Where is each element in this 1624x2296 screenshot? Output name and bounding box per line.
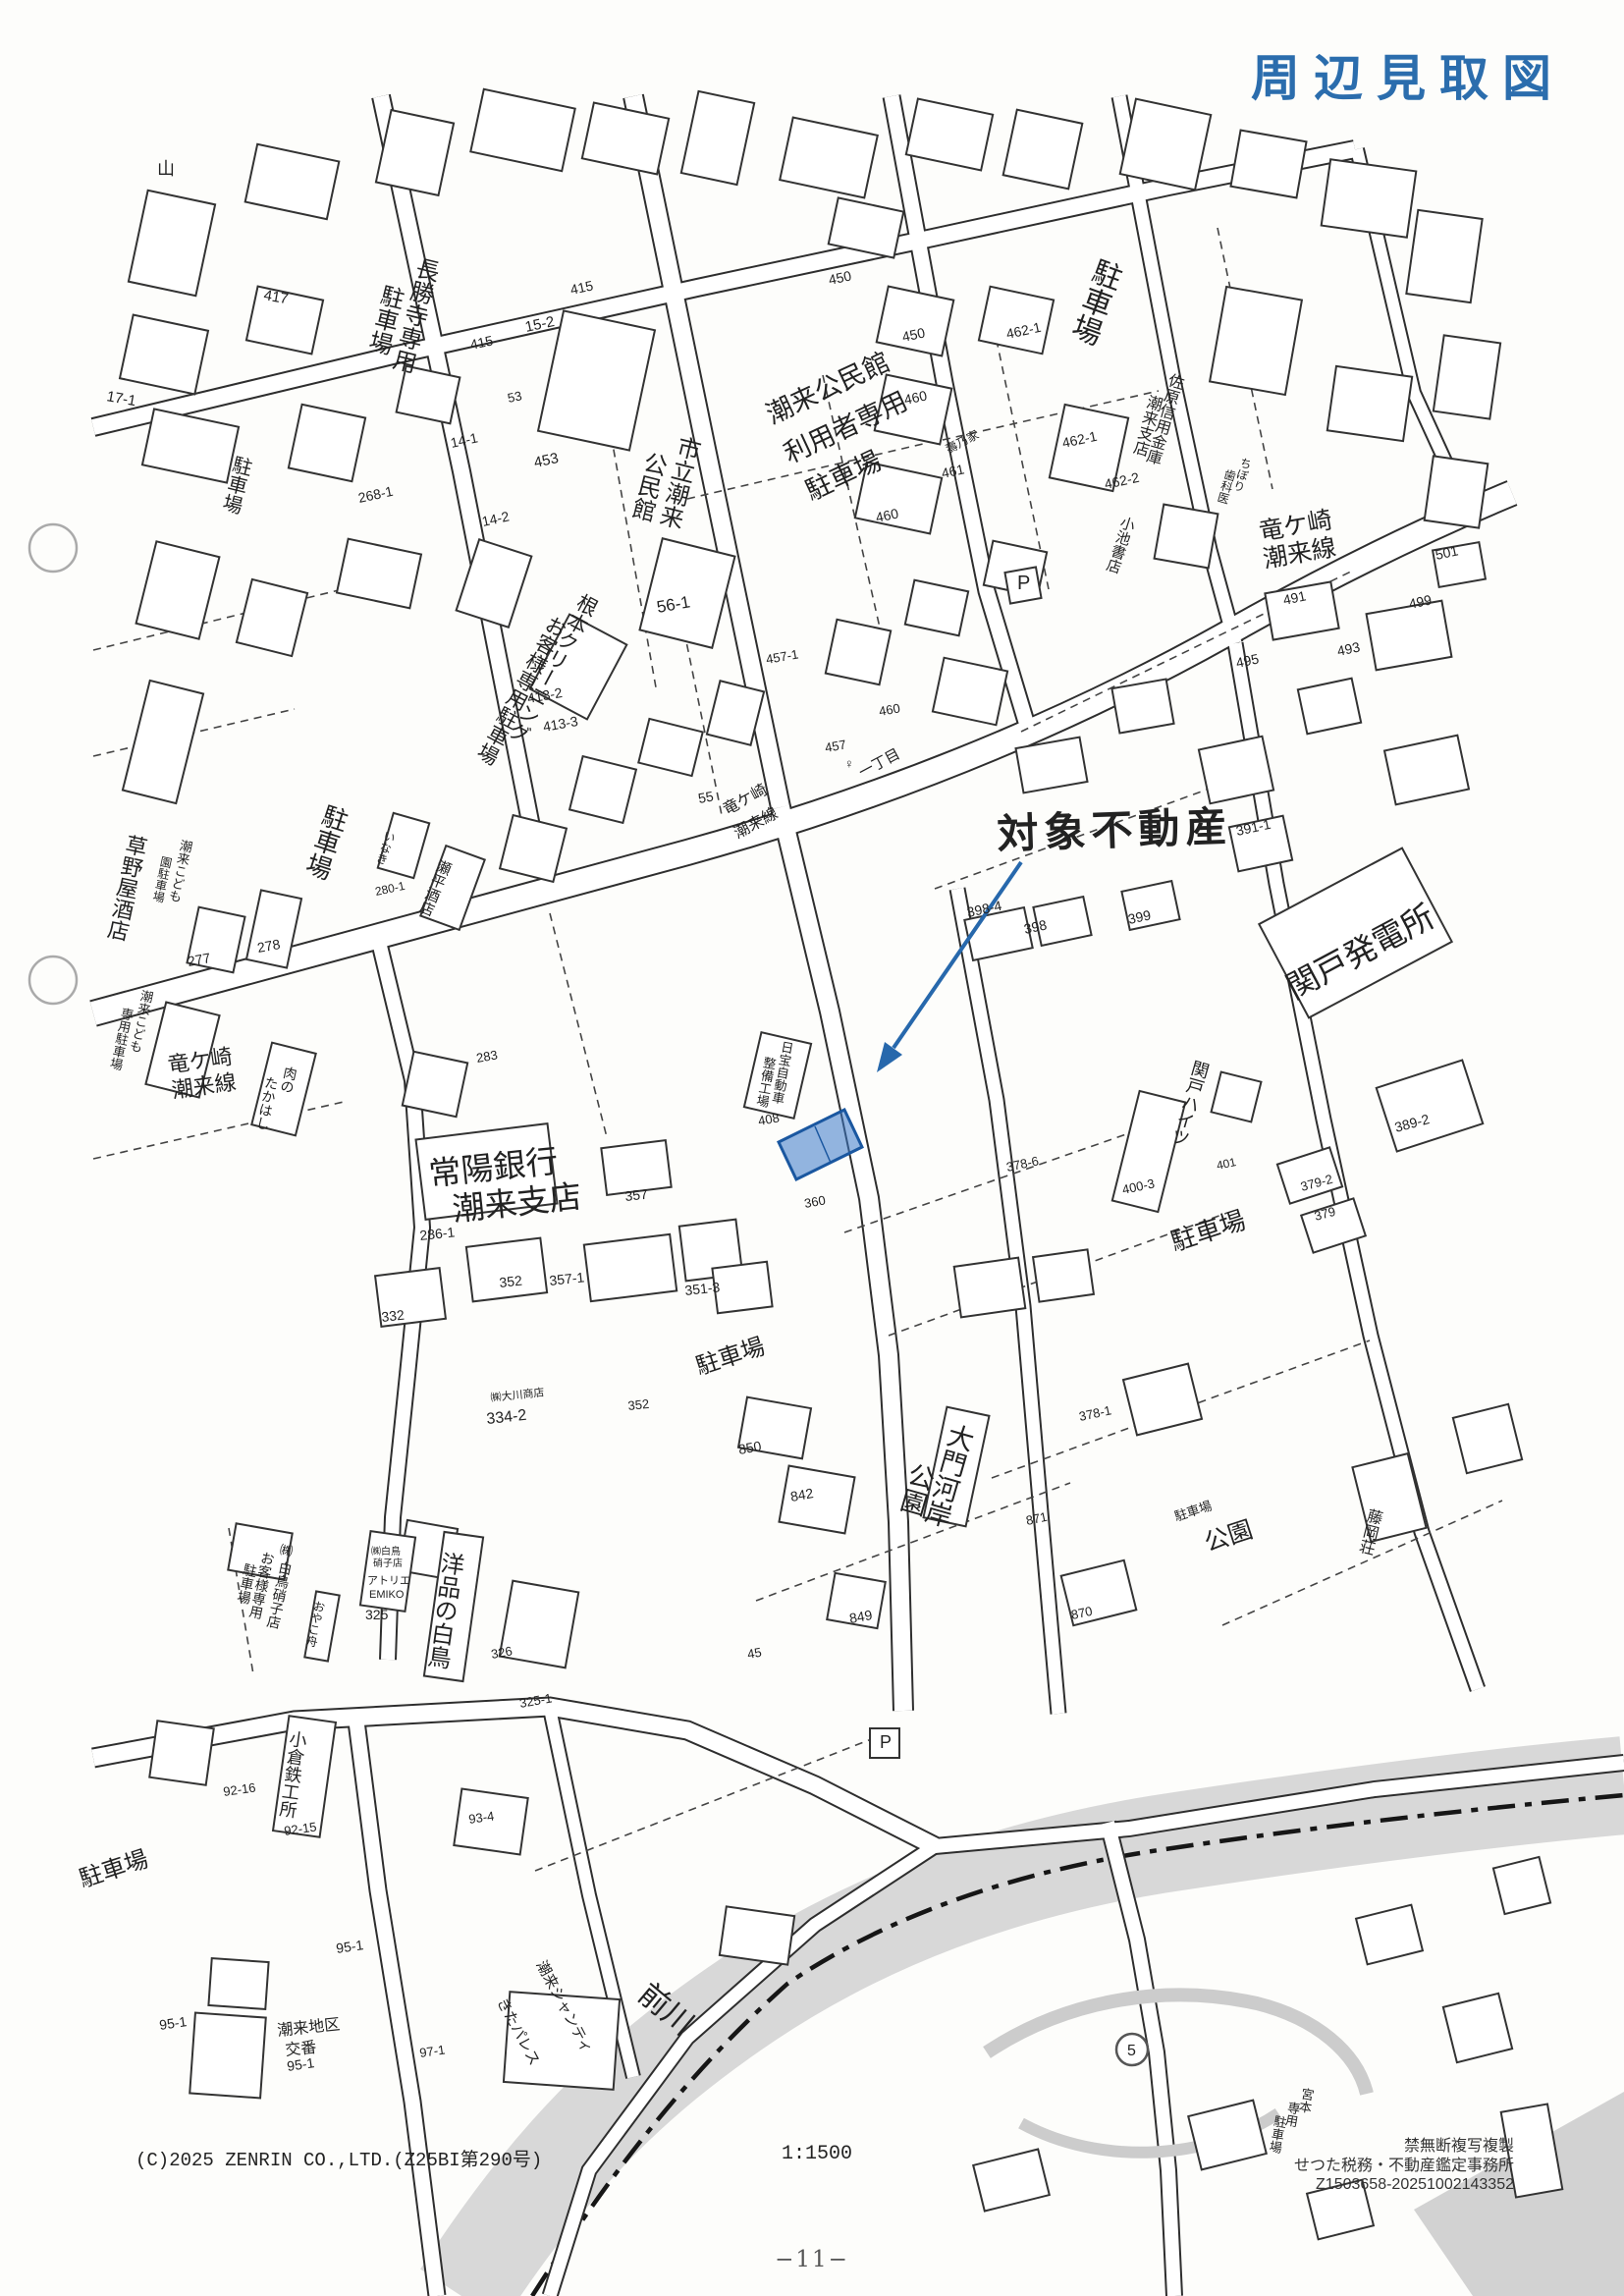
map-label: 413-3 bbox=[542, 713, 579, 735]
map-label: 457 bbox=[824, 737, 847, 755]
page-number: −11− bbox=[775, 2247, 849, 2272]
map-label: 850 bbox=[737, 1438, 763, 1457]
map-label: 352 bbox=[499, 1273, 523, 1290]
map-label: 山 bbox=[157, 159, 175, 179]
map-label: 駐車場 bbox=[1064, 253, 1126, 349]
map-label: 小池書店 bbox=[1103, 514, 1137, 575]
map-label: 334-2 bbox=[486, 1407, 528, 1428]
map-label: 5 bbox=[1127, 2043, 1136, 2059]
rights-line: せつた税務・不動産鑑定事務所 bbox=[1294, 2157, 1514, 2176]
map-label: 潮来地区 bbox=[277, 2015, 342, 2040]
subject-property-highlight bbox=[779, 1110, 862, 1179]
map-label: 401 bbox=[1216, 1155, 1238, 1173]
map-label: 286-1 bbox=[419, 1224, 456, 1243]
map-label: 495 bbox=[1234, 650, 1260, 671]
rights-line: Z1503658-20251002143352 bbox=[1294, 2175, 1514, 2195]
map-label: 352 bbox=[627, 1396, 650, 1413]
map-label: 交番 bbox=[285, 2039, 318, 2059]
map-label: 357-1 bbox=[549, 1269, 585, 1288]
map-label: 17-1 bbox=[105, 388, 137, 410]
map-label: 283 bbox=[475, 1047, 499, 1066]
map-label: 457-1 bbox=[765, 646, 799, 667]
map-label: P bbox=[1017, 573, 1030, 594]
subject-arrow-icon bbox=[877, 862, 1021, 1072]
map-label: 駐車場 bbox=[300, 800, 352, 883]
subject-property-label: 対象不動産 bbox=[997, 802, 1234, 858]
map-label: 408 bbox=[757, 1110, 781, 1128]
map-label: ㈱大川商店 bbox=[490, 1385, 545, 1404]
map-label: 493 bbox=[1335, 638, 1361, 659]
map-label: 14-2 bbox=[480, 508, 511, 529]
map-label: 268-1 bbox=[356, 483, 395, 506]
map-label: 92-16 bbox=[222, 1779, 256, 1798]
map-label: 駐車場 bbox=[1167, 1205, 1249, 1257]
map-label: 駐車場 bbox=[77, 1846, 152, 1893]
rights-block: 禁無断複写複製 せつた税務・不動産鑑定事務所 Z1503658-20251002… bbox=[1294, 2137, 1514, 2195]
map-label: ♀ bbox=[844, 756, 854, 771]
map-label: P bbox=[880, 1732, 892, 1752]
map-label: 硝子店 bbox=[373, 1557, 403, 1569]
map-label: 97-1 bbox=[418, 2042, 446, 2059]
map-label: ㈱白鳥 bbox=[371, 1545, 401, 1558]
map-label: 360 bbox=[803, 1192, 827, 1211]
map-label: 45 bbox=[746, 1645, 763, 1662]
map-label: 453 bbox=[532, 450, 560, 471]
map-label: 公園 bbox=[1201, 1516, 1256, 1558]
map-label: 駐車場 bbox=[1172, 1499, 1214, 1524]
zenrin-copyright: (C)2025 ZENRIN CO.,LTD.(Z25BI第290号) bbox=[135, 2145, 542, 2171]
map-label: 415 bbox=[568, 277, 594, 298]
map-label: 460 bbox=[878, 700, 901, 719]
rights-line: 禁無断複写複製 bbox=[1294, 2137, 1514, 2157]
map-label: アトリエ bbox=[367, 1575, 410, 1587]
scanned-map-page: 山17-1417長勝寺専用駐車場15-24154155345314-114-22… bbox=[0, 0, 1624, 2296]
map-label: 280-1 bbox=[374, 879, 406, 899]
map-label: 95-1 bbox=[335, 1937, 364, 1956]
page-title: 周辺見取図 bbox=[1251, 39, 1565, 110]
map-label: EMIKO bbox=[369, 1589, 405, 1601]
map-label: 378-1 bbox=[1078, 1402, 1113, 1424]
map-label: 415 bbox=[468, 332, 494, 353]
map-scale: 1:1500 bbox=[782, 2143, 852, 2165]
map-label: 332 bbox=[381, 1307, 406, 1325]
map-label: 53 bbox=[507, 388, 523, 406]
map-label: 55 bbox=[697, 788, 715, 805]
map-label: 450 bbox=[827, 267, 852, 288]
map-label: 駐車場 bbox=[693, 1334, 769, 1381]
map-label: 95-1 bbox=[158, 2013, 188, 2033]
map-canvas: 山17-1417長勝寺専用駐車場15-24154155345314-114-22… bbox=[0, 0, 1624, 2296]
map-label: 草野屋酒店 bbox=[103, 832, 149, 943]
map-label: 325 bbox=[365, 1607, 389, 1622]
map-label: 357 bbox=[624, 1186, 649, 1204]
